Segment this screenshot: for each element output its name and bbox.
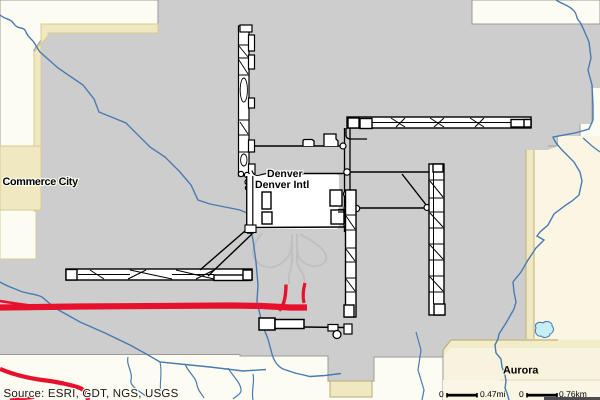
svg-text:0.47mi: 0.47mi bbox=[480, 389, 506, 399]
svg-text:Commerce City: Commerce City bbox=[3, 176, 79, 188]
svg-text:0: 0 bbox=[519, 389, 524, 399]
svg-text:Aurora: Aurora bbox=[503, 365, 539, 377]
svg-text:Denver Intl: Denver Intl bbox=[255, 179, 309, 191]
svg-text:Source: ESRI, GDT, NGS, USGS: Source: ESRI, GDT, NGS, USGS bbox=[4, 388, 179, 400]
svg-text:0: 0 bbox=[439, 389, 444, 399]
